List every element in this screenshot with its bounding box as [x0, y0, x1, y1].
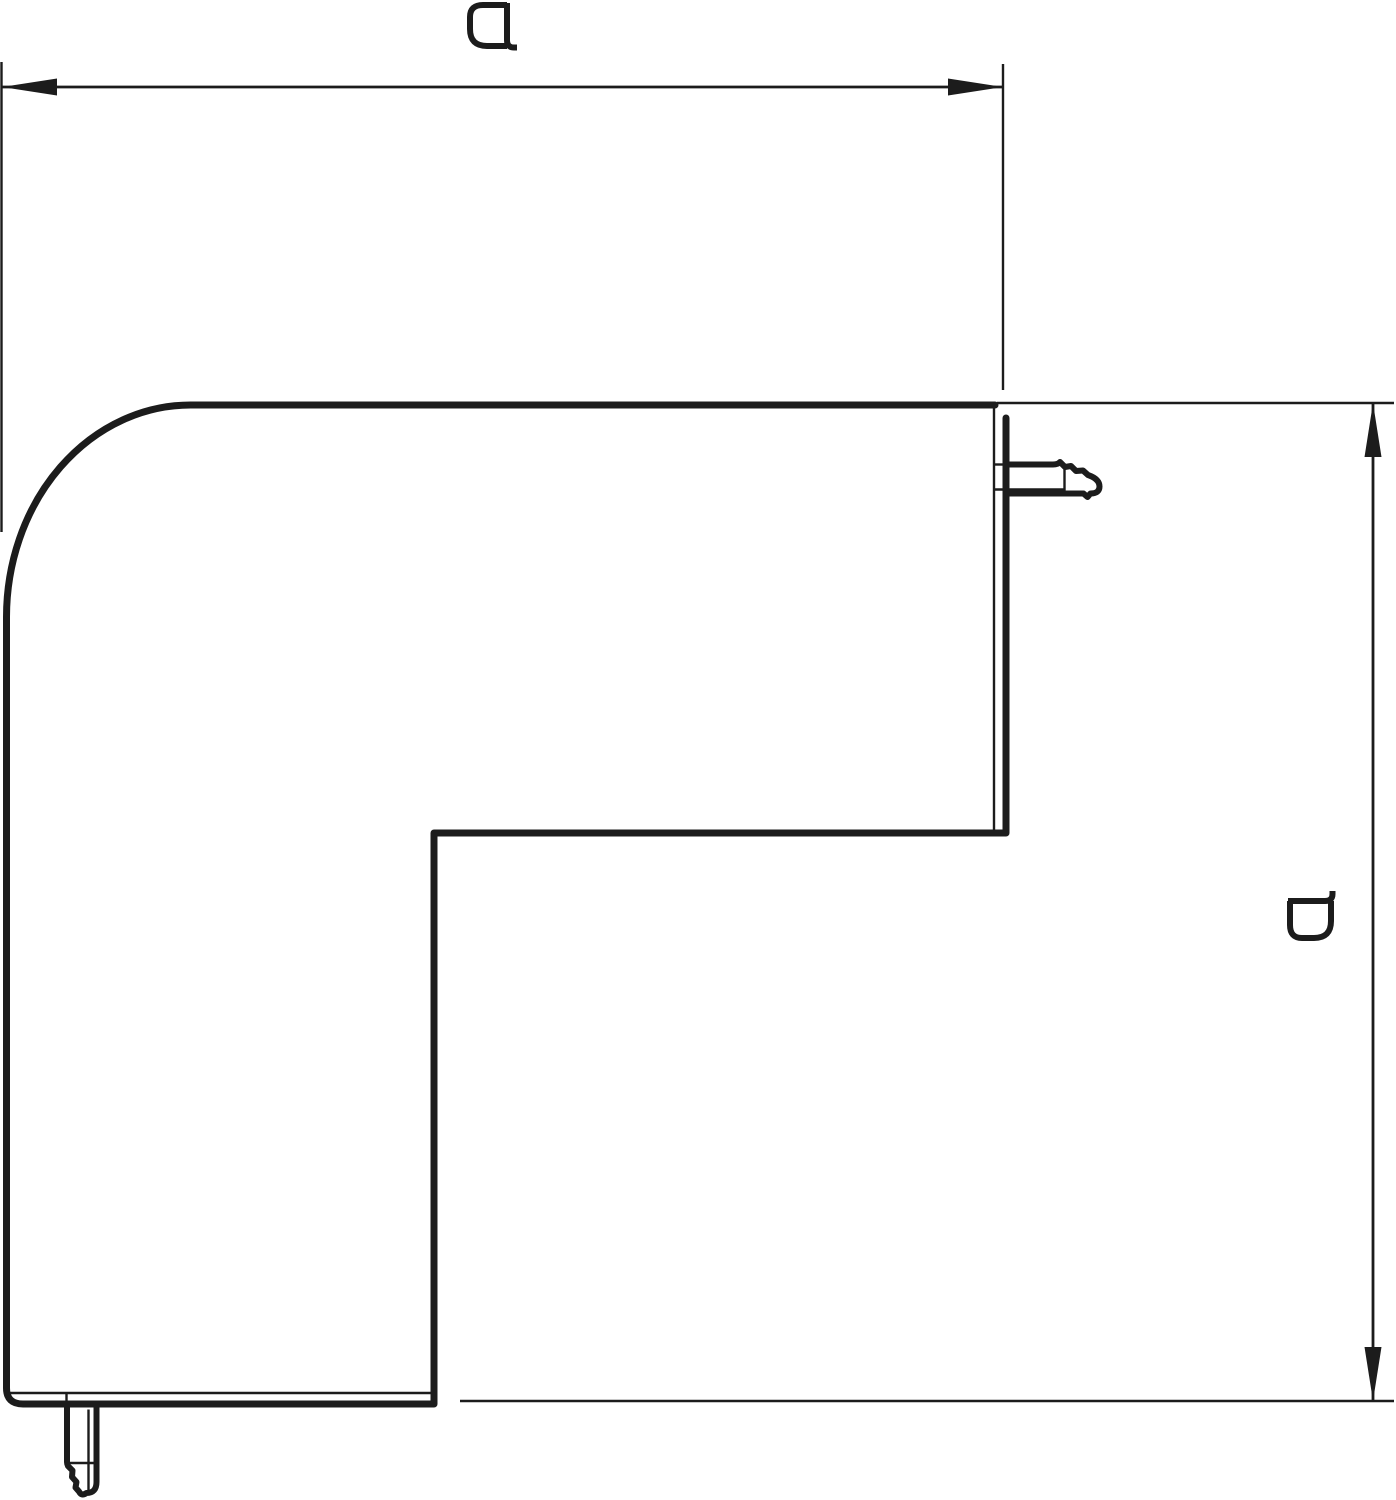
arrowhead-up-icon	[1365, 403, 1382, 457]
vertical-dimension-label-text: a	[1292, 886, 1328, 954]
arrowhead-right-icon	[948, 79, 1003, 96]
flat-angle-corner-dimension-drawing: a a	[0, 0, 1396, 1500]
horizontal-dimension-label-text: a	[472, 0, 508, 58]
letter-a-stem	[507, 3, 517, 48]
horizontal-dimension: a	[2, 0, 1004, 532]
arrowhead-down-icon	[1365, 1347, 1382, 1401]
part-outer-outline	[7, 405, 1007, 1404]
corner-piece-part	[7, 405, 1007, 1404]
latch-tab-right	[995, 462, 1100, 497]
vertical-dimension: a	[460, 403, 1394, 1401]
arrowhead-left-icon	[2, 79, 57, 96]
technical-drawing-page: a a	[0, 0, 1396, 1500]
latch-hook-bottom	[67, 1394, 97, 1494]
latch-tab-outline	[1009, 462, 1100, 497]
latch-hook-outline	[67, 1405, 97, 1494]
